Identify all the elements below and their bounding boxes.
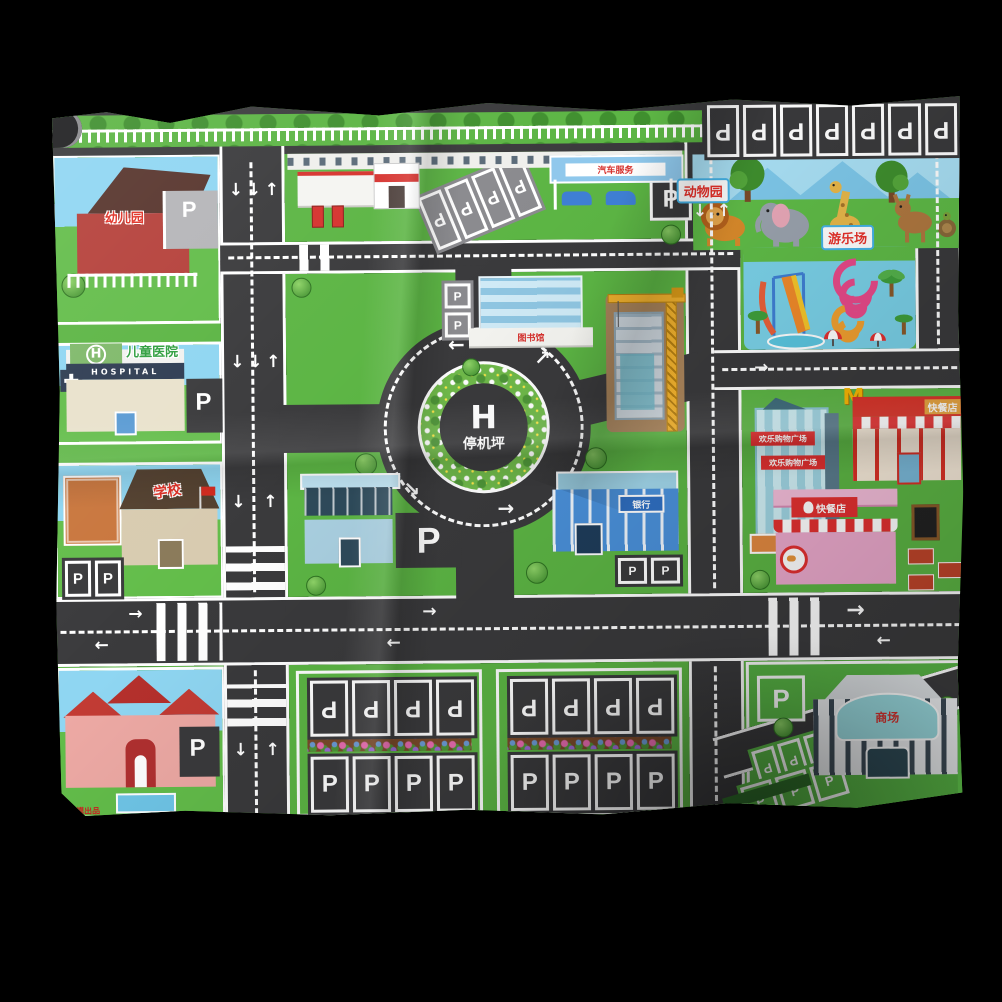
parking-stall: P xyxy=(444,283,470,308)
bank-parking: P P xyxy=(615,554,683,587)
parking-p: P xyxy=(447,695,463,719)
crosswalk xyxy=(227,684,286,727)
stall-row-upper: P P P P xyxy=(307,676,478,739)
product-photo: ↓ ↓ ↑ ↓ ↓ ↑ ↓ ↑ ↓ ↑ ← → ← → → ← → ↓ ↑ P … xyxy=(0,0,1002,1002)
parking-stall: P xyxy=(437,755,475,811)
roundabout-arrow: ↘ xyxy=(403,479,420,499)
parking-p: P xyxy=(364,772,380,796)
hospital-driveway: P xyxy=(186,378,222,432)
school-label: 学校 xyxy=(152,479,183,503)
stall-row-lower: P P P P xyxy=(308,752,479,815)
parking-p: P xyxy=(751,119,767,143)
burger-label: 快餐店 xyxy=(924,399,960,414)
building-frame-glass xyxy=(620,354,654,410)
stall-row-upper: P P P P xyxy=(507,675,678,738)
lane-arrow: ↑ xyxy=(265,742,279,759)
parking-stall: P xyxy=(925,103,958,155)
parking-p: P xyxy=(522,771,538,795)
hospital-label-en: HOSPITAL xyxy=(91,367,159,377)
car-service-label: 汽车服务 xyxy=(597,163,633,176)
kfc-label: 快餐店 xyxy=(816,500,846,515)
bank-building: 银行 P P xyxy=(552,470,683,581)
parking-p: P xyxy=(454,319,462,331)
parking-p: P xyxy=(195,391,211,415)
school-parking: P P xyxy=(62,557,124,600)
pool xyxy=(116,793,176,814)
parking-stall: P xyxy=(651,558,680,584)
mall-glass-band: 商场 xyxy=(835,692,939,741)
school-entrance xyxy=(158,539,184,569)
parking-stall: P xyxy=(95,560,121,596)
zoo-label: 动物园 xyxy=(677,178,730,203)
parking-p: P xyxy=(521,695,537,719)
parking-p: P xyxy=(431,209,449,230)
lane-arrow: ↓ xyxy=(230,354,244,371)
helipad-h: H xyxy=(470,401,497,433)
parking-p: P xyxy=(788,118,804,142)
parking-p: P xyxy=(321,697,337,721)
tree xyxy=(526,562,548,584)
menu-board-icon xyxy=(911,504,939,540)
tower-banner: 欢乐购物广场 xyxy=(751,431,815,446)
kfc-sign: 快餐店 xyxy=(791,497,857,518)
parking-p: P xyxy=(897,117,913,141)
lane-arrow: ↓ xyxy=(248,354,262,371)
lane-arrow: ← xyxy=(877,633,891,650)
parking-stall: P xyxy=(310,680,348,736)
parking-p: P xyxy=(628,565,636,577)
kindergarten-building: 幼儿园 P xyxy=(66,167,215,298)
parking-p: P xyxy=(454,290,462,302)
library-base: 图书馆 xyxy=(469,327,593,346)
office-door xyxy=(339,537,361,567)
parking-stall: P xyxy=(888,103,921,155)
parking-p: P xyxy=(824,118,840,142)
parking-p: P xyxy=(772,686,790,712)
parking-p: P xyxy=(860,118,876,142)
parking-stall: P xyxy=(618,558,647,584)
burger-restaurant: M 快餐店 xyxy=(852,396,961,481)
playground-label-text: 游乐场 xyxy=(828,232,867,247)
parking-stall: P xyxy=(353,756,391,812)
tower-banner: 欢乐购物广场 xyxy=(761,455,825,470)
parking-p: P xyxy=(406,772,422,796)
lane-arrow: ← xyxy=(387,635,401,652)
parking-stall: P xyxy=(352,680,390,736)
office-top-floor xyxy=(304,487,392,516)
parking-stall: P xyxy=(743,105,776,157)
mall-building: 商场 xyxy=(813,674,962,791)
parking-p: P xyxy=(511,176,529,197)
bank-door xyxy=(575,523,603,555)
lane-arrow: → xyxy=(846,600,865,622)
parking-p: P xyxy=(661,565,669,577)
lane-arrow: ↓ xyxy=(233,742,247,759)
parking-p: P xyxy=(322,773,338,797)
hospital-door xyxy=(115,411,137,435)
outdoor-table xyxy=(938,562,964,578)
city-play-mat: ↓ ↓ ↑ ↓ ↓ ↑ ↓ ↑ ↓ ↑ ← → ← → → ← → ↓ ↑ P … xyxy=(52,96,966,822)
tree xyxy=(291,278,311,298)
kindergarten-driveway: P xyxy=(163,191,219,249)
apartment-entrance xyxy=(125,739,155,787)
apartment-driveway: P xyxy=(179,727,219,777)
colonel-icon xyxy=(803,501,813,513)
bank-label: 银行 xyxy=(632,497,650,510)
parking-p: P xyxy=(762,760,774,775)
parking-stall: P xyxy=(852,104,885,156)
hospital-roof-h: H xyxy=(86,345,106,365)
tower-banner-text: 欢乐购物广场 xyxy=(759,433,807,444)
parking-lot-east: P P P P P P P P xyxy=(499,671,680,813)
parking-p: P xyxy=(788,753,800,768)
parking-stall: P xyxy=(637,754,675,810)
parking-p: P xyxy=(189,737,205,761)
roundabout-west-link xyxy=(280,404,390,453)
apartment-roof-left xyxy=(63,691,123,718)
parking-stall: P xyxy=(552,678,590,734)
roundabout-arrow: → xyxy=(497,498,514,518)
hospital-band: HOSPITAL xyxy=(66,363,184,380)
kindergarten-label: 幼儿园 xyxy=(105,207,144,226)
fuel-pump-icon xyxy=(332,205,344,227)
mall-label: 商场 xyxy=(875,708,899,725)
parking-stall: P xyxy=(510,679,548,735)
car-service-roof: 汽车服务 xyxy=(549,154,683,183)
parking-stall: P xyxy=(553,754,591,810)
lane-arrow: ↑ xyxy=(263,494,277,511)
burger-sign-band: 快餐店 xyxy=(852,396,966,417)
lane-arrow: ↓ xyxy=(231,494,245,511)
car-icon xyxy=(562,191,592,205)
parking-p: P xyxy=(933,117,949,141)
bank-sign: 银行 xyxy=(618,495,664,513)
library-building: 图书馆 xyxy=(468,275,597,350)
basketball-court xyxy=(63,475,122,546)
crane-cable xyxy=(618,301,619,327)
playground-label: 游乐场 xyxy=(821,225,874,250)
parking-p: P xyxy=(563,694,579,718)
hospital-building: H 儿童医院 HOSPITAL P xyxy=(60,349,219,440)
zoo-label-text: 动物园 xyxy=(684,185,723,200)
parking-p: P xyxy=(648,770,664,794)
parking-stall: P xyxy=(707,105,740,157)
parking-stall: P xyxy=(436,679,474,735)
burger-logo-icon xyxy=(780,545,808,573)
zoo-parking-row: P P P P P P P xyxy=(704,100,960,160)
parking-stall: P xyxy=(395,756,433,812)
brand-credit: 车模出品 xyxy=(68,806,100,817)
parking-stall: P xyxy=(445,312,471,337)
parking-p: P xyxy=(606,770,622,794)
lane-arrow: → xyxy=(754,360,768,377)
parking-p: P xyxy=(605,694,621,718)
parking-lot-west: P P P P P P P P xyxy=(299,672,480,814)
parking-sign-box: P xyxy=(757,675,805,721)
parking-p: P xyxy=(564,770,580,794)
lane-arrow: ↓ xyxy=(693,203,707,220)
parking-stall: P xyxy=(65,561,91,597)
parking-p: P xyxy=(448,771,464,795)
tree xyxy=(585,447,607,469)
parking-stall: P xyxy=(394,680,432,736)
tree xyxy=(462,358,480,376)
parking-p: P xyxy=(457,198,475,219)
burger-door xyxy=(897,452,921,484)
chicken-restaurant: 快餐店 xyxy=(773,489,904,590)
lane-arrow: → xyxy=(422,604,436,621)
lane-arrow: ↑ xyxy=(266,354,280,371)
tree xyxy=(355,453,377,475)
car-icon xyxy=(606,191,636,205)
crosswalk xyxy=(768,597,831,656)
parking-p: P xyxy=(647,694,663,718)
crane-mast-icon xyxy=(666,298,678,432)
lane-arrow: ↓ xyxy=(247,182,261,199)
crosswalk xyxy=(299,245,331,271)
lane-arrow: ↓ xyxy=(229,182,243,199)
parking-stall: P xyxy=(595,754,633,810)
playground-scene xyxy=(743,246,916,349)
lane-arrow: ← xyxy=(95,637,109,654)
parking-p: P xyxy=(715,119,731,143)
kfc-awning xyxy=(774,519,898,533)
parking-p: P xyxy=(484,187,502,208)
parking-stall: P xyxy=(511,755,549,811)
stall-row-lower: P P P P xyxy=(508,751,679,814)
roundabout-south-link xyxy=(456,525,515,601)
parking-stall: P xyxy=(594,678,632,734)
parking-stall: P xyxy=(311,756,349,812)
pool xyxy=(768,334,824,348)
outdoor-table xyxy=(908,548,934,564)
crosswalk xyxy=(156,603,223,662)
parking-stall: P xyxy=(636,678,674,734)
crane-counterweight xyxy=(672,287,684,297)
parking-p: P xyxy=(182,199,197,221)
tree xyxy=(773,718,793,738)
tree xyxy=(661,224,681,244)
parking-stall: P xyxy=(779,104,812,156)
outdoor-table xyxy=(908,574,934,590)
parking-p: P xyxy=(405,696,421,720)
fuel-pump-icon xyxy=(312,206,324,228)
library-label: 图书馆 xyxy=(517,330,544,343)
lane-arrow: ↑ xyxy=(717,203,731,220)
lane-arrow: ↑ xyxy=(265,182,279,199)
helipad: H 停机坪 xyxy=(439,383,528,472)
parking-p: P xyxy=(363,696,379,720)
lane-arrow: → xyxy=(128,606,142,623)
tree xyxy=(306,576,326,596)
car-service-station: 汽车服务 xyxy=(549,155,680,218)
parking-stall: P xyxy=(816,104,849,156)
office-building xyxy=(300,473,401,574)
crosswalk xyxy=(226,546,285,591)
gas-station xyxy=(297,171,418,238)
helipad-label: 停机坪 xyxy=(463,433,505,453)
parking-p: P xyxy=(103,571,113,586)
mall-entrance xyxy=(866,747,910,779)
hospital-label-cn: 儿童医院 xyxy=(126,341,178,360)
school-building: 学校 P P xyxy=(61,469,220,594)
tower-cap xyxy=(762,397,806,409)
tower-banner-text: 欢乐购物广场 xyxy=(769,457,817,468)
parking-p: P xyxy=(417,522,441,558)
construction-site xyxy=(605,283,686,434)
roundabout-arrow: ↗ xyxy=(534,348,551,368)
kindergarten-fence xyxy=(67,273,197,288)
apartment-roof-mid xyxy=(107,675,171,704)
parking-p: P xyxy=(73,571,83,586)
library-glass xyxy=(478,275,582,332)
tree xyxy=(750,570,770,590)
apartment-building: P 车模出品 xyxy=(63,675,222,816)
gas-shop xyxy=(373,163,419,209)
